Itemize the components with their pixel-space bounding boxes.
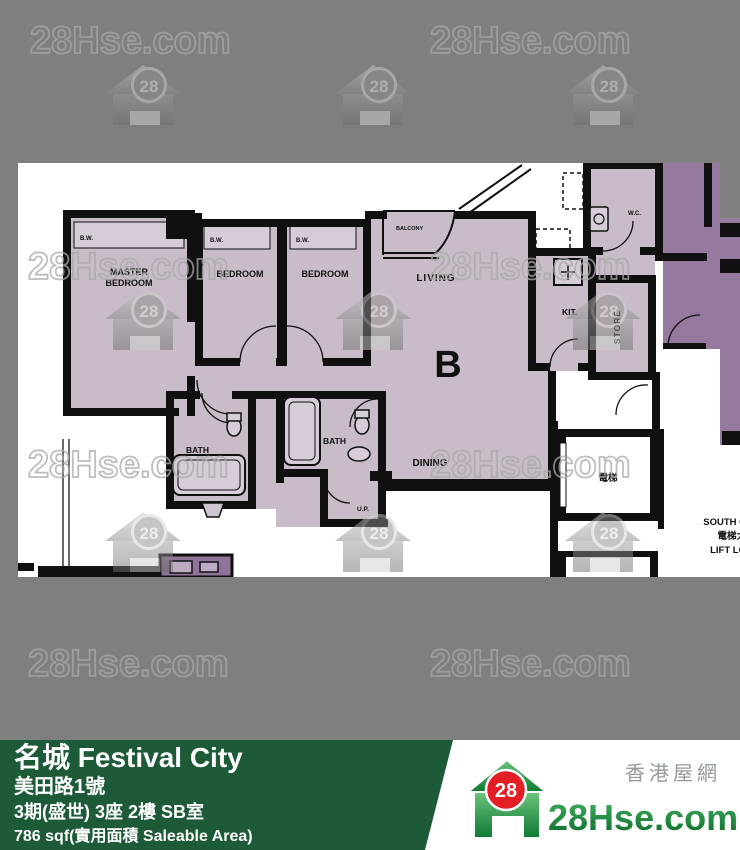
bathtub-icon (173, 455, 245, 495)
basin-icon (202, 503, 224, 517)
pipe-wall-line (68, 439, 70, 566)
floor-plan-svg: B.W. B.W. B.W. MASTER BEDROOM BEDROOM BE… (18, 163, 740, 577)
label-dining: DINING (413, 458, 448, 469)
logo-site-name: 28Hse.com (548, 797, 738, 838)
label-bay-window: B.W. (210, 238, 223, 244)
label-bath: BATH (186, 445, 209, 455)
label-wc: W.C. (628, 211, 641, 217)
label-bath: BATH (323, 436, 346, 446)
property-unit-info: 3期(盛世) 3座 2樓 SB室 (14, 800, 456, 825)
label-kitchen: KIT. (562, 307, 577, 317)
site-logo[interactable]: 28 香港屋網 28Hse.com (468, 750, 740, 850)
basin-icon (348, 447, 370, 461)
label-bay-window: B.W. (80, 236, 93, 242)
wc-toilet-icon (590, 207, 608, 231)
logo-tagline: 香港屋網 (625, 762, 721, 785)
floor-plan-image: B.W. B.W. B.W. MASTER BEDROOM BEDROOM BE… (18, 163, 740, 577)
label-bay-window: B.W. (296, 238, 309, 244)
facade-diagonal-line (459, 165, 522, 209)
label-lift: 電梯 (598, 472, 618, 484)
watermark-badge: 28 (140, 77, 159, 96)
property-area-info: 786 sqf(實用面積 Saleable Area) (14, 825, 456, 848)
watermark-badge: 28 (370, 77, 389, 96)
label-bedroom: BEDROOM (217, 269, 264, 279)
watermark-text: 28Hse.com (430, 20, 631, 63)
property-banner: 名城 Festival City 美田路1號 3期(盛世) 3座 2樓 SB室 … (0, 740, 456, 850)
label-balcony: BALCONY (396, 226, 424, 232)
label-lobby-1: SOUTH C (703, 517, 740, 528)
house-28-icon: 28 (468, 760, 546, 838)
lift-door-slot (560, 443, 566, 507)
label-store: STORE (612, 310, 622, 344)
page: B.W. B.W. B.W. MASTER BEDROOM BEDROOM BE… (0, 0, 740, 850)
logo-badge: 28 (495, 780, 517, 802)
watermark-house-logo: 28 (563, 64, 643, 126)
label-bedroom: BEDROOM (302, 269, 349, 279)
watermark-badge: 28 (600, 77, 619, 96)
label-lobby-3: LIFT LO (710, 545, 740, 556)
watermark-text: 28Hse.com (430, 643, 631, 686)
lift-2-cab (566, 557, 650, 577)
label-master-bedroom-1: MASTER (110, 267, 149, 277)
watermark-text: 28Hse.com (30, 20, 231, 63)
canvas-corner-notch (720, 163, 740, 218)
property-title: 名城 Festival City (14, 742, 456, 774)
watermark-house-logo: 28 (103, 64, 183, 126)
label-unit: B (434, 344, 461, 386)
lift-shafts (558, 429, 658, 577)
facade-diagonal-line (469, 169, 531, 213)
watermark-text: 28Hse.com (28, 643, 229, 686)
watermark-house-logo: 28 (333, 64, 413, 126)
pipe-wall-line (62, 439, 64, 566)
label-master-bedroom-2: BEDROOM (106, 278, 153, 288)
property-address: 美田路1號 (14, 774, 456, 800)
label-lobby-2: 電梯大 (717, 530, 740, 542)
label-utility-platform: U.P. (357, 506, 369, 513)
ac-platforms-dashed (536, 173, 583, 255)
label-living: LIVING (416, 273, 455, 284)
